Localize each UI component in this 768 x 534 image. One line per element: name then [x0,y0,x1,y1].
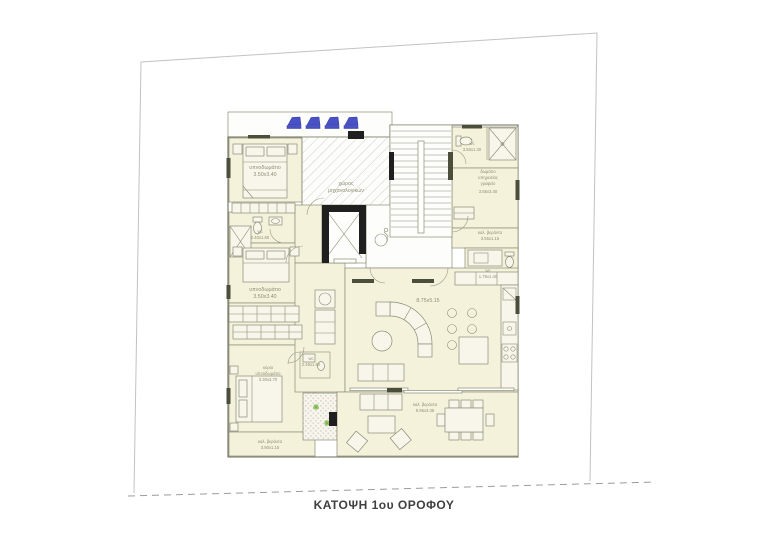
label-veranda-main-dims: 9.95x3.35 [416,408,435,413]
label-bedroom2: υπνοδωμάτιο [249,286,281,293]
staircase [389,125,453,237]
sink-icon [269,217,282,225]
floor-plan-canvas: υπνοδωμάτιο 3.50x3.40 χώρος μηχανολογικώ… [0,0,768,534]
nightstand [288,144,297,154]
wc-service-fixtures [468,250,514,268]
label-master: κύριο [263,365,274,370]
label-wc-top: wc [469,141,474,146]
vanity-icon [468,250,502,266]
label-veranda-left: καλ. βεράντα [258,439,283,444]
label-bedroom1-dims: 3.50x3.40 [253,172,276,178]
drawing-title: ΚΑΤΟΨΗ 1ου ΟΡΟΦΟΥ [0,498,768,512]
label-veranda-right: καλ. βεράντα [478,230,503,235]
mechanical-hatch [302,137,390,215]
label-wc-left-dims: 2.40x1.60 [251,235,270,240]
label-mechanical: χώρος [338,180,354,187]
room-veranda-left [229,432,315,456]
label-wc-left: wc [257,229,262,234]
label-living-dims: 8.75x5.15 [416,298,439,304]
label-veranda-left-dims: 3.90x1.15 [261,445,280,450]
nightstand [233,247,242,256]
stair-divider [418,141,424,233]
label-bedroom1: υπνοδωμάτιο [249,164,281,171]
elevator-door [334,259,356,263]
drawing-sheet: υπνοδωμάτιο 3.50x3.40 χώρος μηχανολογικώ… [0,0,768,534]
coffee-table-icon [372,331,392,351]
label-wc-top-dims: 3.50x1.30 [463,147,482,152]
label-office-2: υπηρεσίας [478,175,498,180]
sofa-icon [358,364,404,381]
bed-icon [243,144,287,198]
label-wc-central-dims: 2.45x1.60 [302,362,321,367]
label-wc-central: wc [308,356,313,361]
outdoor-sofa-icon [360,394,402,410]
label-wc-service-dims: 1.75x1.40 [479,274,498,279]
nightstand [233,144,242,154]
label-master-dims: 3.30x3.70 [259,377,278,382]
label-office-3: γραφείο [481,181,496,186]
nightstand [230,423,238,431]
label-bedroom2-dims: 3.50x3.40 [253,294,276,300]
elevator [322,205,366,263]
bed-icon [236,376,282,422]
outdoor-table-icon [368,416,395,433]
roof-terrace [228,112,392,137]
kitchen-column [315,290,335,344]
label-veranda-right-dims: 3.55x1.15 [481,236,500,241]
shower-icon [489,128,516,160]
closet-row-top [232,203,295,213]
label-office-dims: 3.55x3.40 [479,189,498,194]
label-office: δωμάτιο [480,169,496,174]
label-wc-service: wc [485,268,490,273]
bed-icon [243,248,289,282]
label-master-2: υπνοδωμάτιο [256,371,282,376]
label-veranda-main: καλ. βεράντα [413,402,438,407]
toilet-icon [505,252,514,268]
nightstand [230,366,238,374]
label-mechanical-2: μηχανολογικών [328,187,364,194]
